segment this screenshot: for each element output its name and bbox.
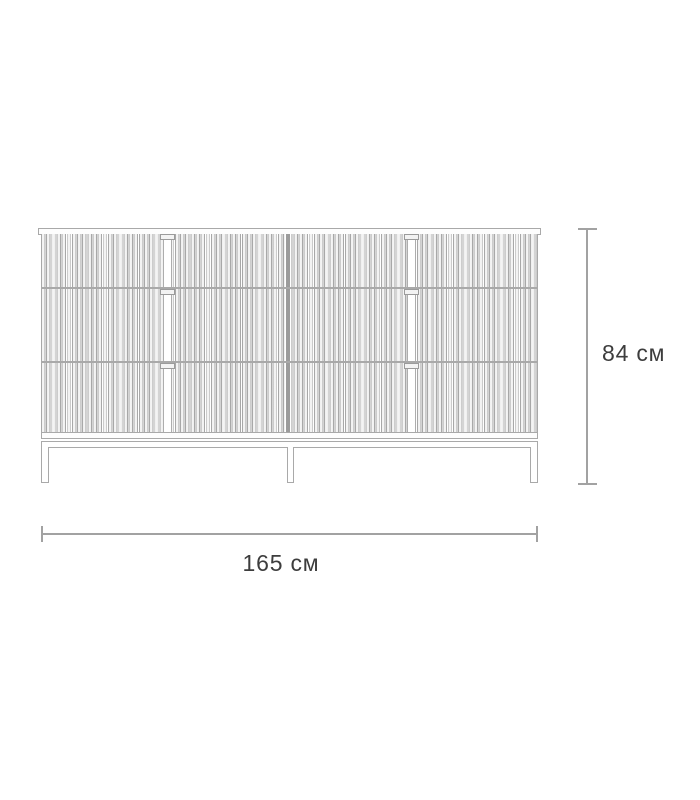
leg-middle bbox=[287, 447, 294, 483]
handle-groove bbox=[163, 240, 172, 287]
drawer-handle bbox=[404, 289, 419, 295]
drawer-handle bbox=[160, 234, 175, 240]
width-dimension-line bbox=[41, 533, 538, 535]
drawer-handle bbox=[404, 234, 419, 240]
drawer-handle bbox=[404, 363, 419, 369]
handle-groove bbox=[407, 369, 416, 432]
height-dimension-cap-top bbox=[578, 228, 597, 230]
center-divider bbox=[285, 234, 291, 432]
width-dimension-label: 165 см bbox=[25, 550, 537, 577]
drawer-separator bbox=[41, 287, 538, 289]
handle-groove bbox=[407, 240, 416, 287]
height-dimension-line bbox=[586, 229, 588, 484]
handle-groove bbox=[163, 369, 172, 432]
drawer-separator bbox=[41, 361, 538, 363]
leg-left bbox=[41, 447, 49, 483]
width-dimension-cap-right bbox=[536, 526, 538, 542]
cabinet-bottom-panel bbox=[41, 432, 538, 439]
width-dimension-cap-left bbox=[41, 526, 43, 542]
height-dimension-cap-bottom bbox=[578, 483, 597, 485]
dresser-dimension-diagram: 84 см 165 см bbox=[0, 0, 700, 800]
handle-groove bbox=[407, 295, 416, 361]
drawer-handle bbox=[160, 289, 175, 295]
height-dimension-label: 84 см bbox=[602, 340, 665, 367]
drawer-handle bbox=[160, 363, 175, 369]
handle-groove bbox=[163, 295, 172, 361]
leg-right bbox=[530, 447, 538, 483]
